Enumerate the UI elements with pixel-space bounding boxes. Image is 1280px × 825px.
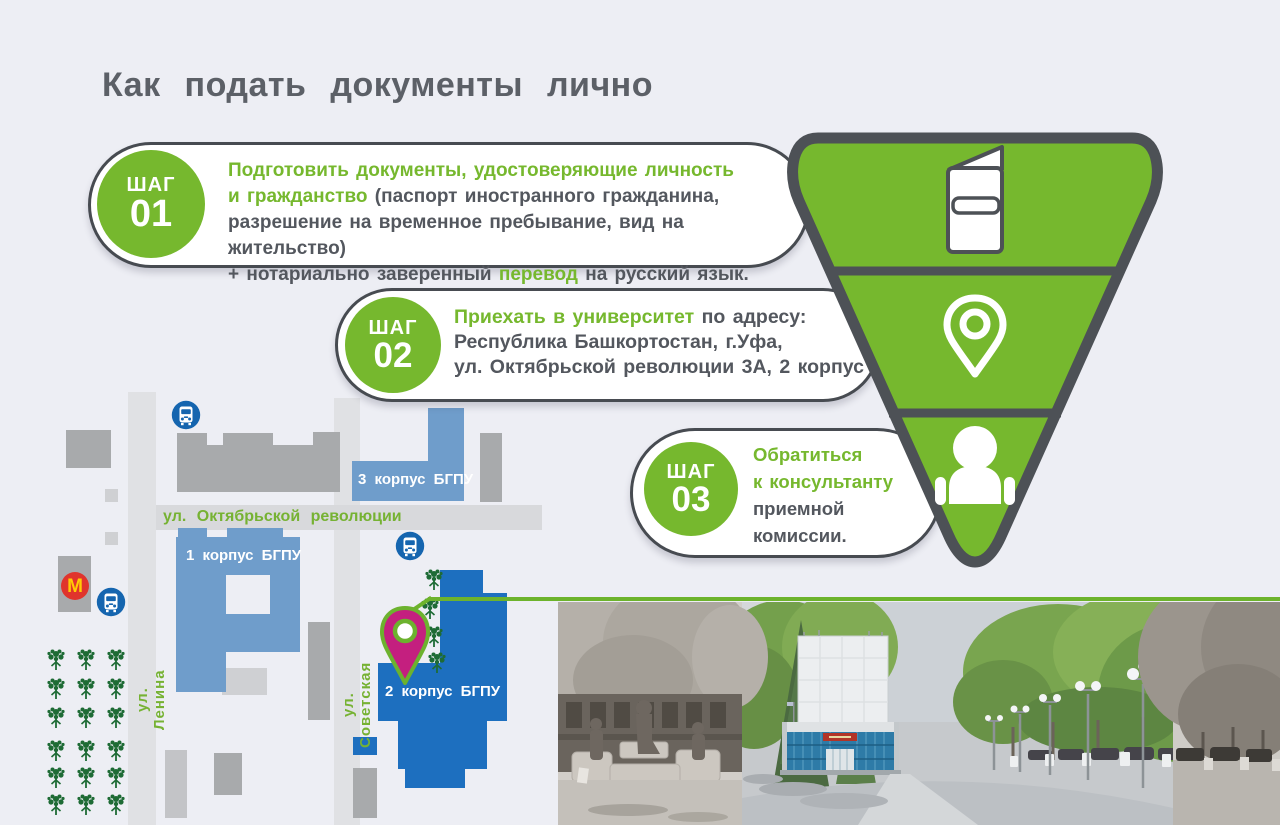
tree-icon [46, 793, 66, 817]
building-korpus1-wing [178, 528, 207, 538]
tree-icon [46, 648, 66, 672]
building-korpus2 [440, 570, 483, 595]
step-text-line: Подготовить документы, удостоверяющие ли… [228, 158, 807, 184]
funnel-diagram [778, 126, 1178, 586]
building-gray [480, 433, 502, 502]
step-text-line: и гражданство (паспорт иностранного граж… [228, 184, 807, 210]
tree-icon [106, 766, 126, 790]
step-3-badge: ШАГ 03 [644, 442, 738, 536]
mcdonalds-icon: M [61, 572, 89, 600]
tree-icon [76, 739, 96, 763]
tree-icon [106, 706, 126, 730]
building-korpus3-label: 3 корпус БГПУ [358, 471, 473, 488]
step-label: ШАГ [127, 175, 176, 195]
building-gray-small [105, 489, 118, 502]
building-gray [222, 668, 267, 695]
tree-icon [106, 739, 126, 763]
building-korpus2-label: 2 корпус БГПУ [385, 683, 500, 700]
building-gray [66, 430, 111, 468]
building-korpus1-label: 1 корпус БГПУ [186, 547, 301, 564]
step-number: 01 [130, 195, 172, 233]
building-korpus3-wing [428, 408, 464, 463]
infographic-canvas: Как подать документы лично 3 корпус БГПУ… [0, 0, 1280, 825]
street-oktyabrskoy-label: ул. Октябрьской революции [163, 508, 402, 526]
tree-icon [46, 706, 66, 730]
building-korpus1-wing [226, 614, 270, 652]
step-label: ШАГ [369, 318, 418, 338]
step-number: 02 [374, 338, 413, 373]
tree-icon [46, 766, 66, 790]
step-1-card: ШАГ 01 Подготовить документы, удостоверя… [88, 142, 810, 268]
building-korpus2-wing [398, 719, 487, 769]
building-korpus2-wing [440, 593, 507, 665]
building-gray [308, 622, 330, 720]
tree-icon [76, 766, 96, 790]
step-number: 03 [672, 482, 711, 517]
street-lenina-road [128, 392, 156, 825]
building-gray [223, 433, 273, 447]
building-korpus1-wing [227, 528, 283, 538]
step-label: ШАГ [667, 462, 716, 482]
tree-icon [106, 648, 126, 672]
building-gray [353, 768, 377, 818]
building-gray-small [105, 532, 118, 545]
building-gray [177, 445, 340, 492]
tree-icon [106, 793, 126, 817]
street-sovetskaya-label: ул. Советская [340, 652, 374, 757]
building-gray [177, 433, 207, 447]
campus-photo [558, 602, 1280, 825]
step-text-line: + нотариально заверенный перевод на русс… [228, 262, 807, 288]
building-gray [313, 432, 340, 447]
step-1-badge: ШАГ 01 [97, 150, 205, 258]
bus-stop-icon [171, 400, 201, 430]
step-2-badge: ШАГ 02 [345, 297, 441, 393]
tree-icon [46, 739, 66, 763]
step-text-line: разрешение на временное пребывание, вид … [228, 210, 807, 262]
photo-left-grayscale [558, 602, 768, 825]
step-1-text: Подготовить документы, удостоверяющие ли… [228, 158, 807, 288]
page-title: Как подать документы лично [102, 66, 653, 105]
tree-icon [76, 648, 96, 672]
tree-icon [76, 706, 96, 730]
building-korpus1-wing [176, 575, 226, 692]
tree-icon [106, 677, 126, 701]
tree-icon [424, 568, 444, 592]
street-lenina-label: ул. Ленина [134, 655, 168, 745]
tree-icon [46, 677, 66, 701]
building-korpus1-wing [270, 575, 300, 652]
building-korpus2-wing [405, 767, 465, 788]
tree-icon [76, 677, 96, 701]
route-line [428, 597, 1280, 601]
bus-stop-icon [395, 531, 425, 561]
bus-stop-icon [96, 587, 126, 617]
side-road [165, 750, 187, 818]
building-gray [214, 753, 242, 795]
tree-icon [76, 793, 96, 817]
destination-pin-icon [379, 606, 431, 686]
